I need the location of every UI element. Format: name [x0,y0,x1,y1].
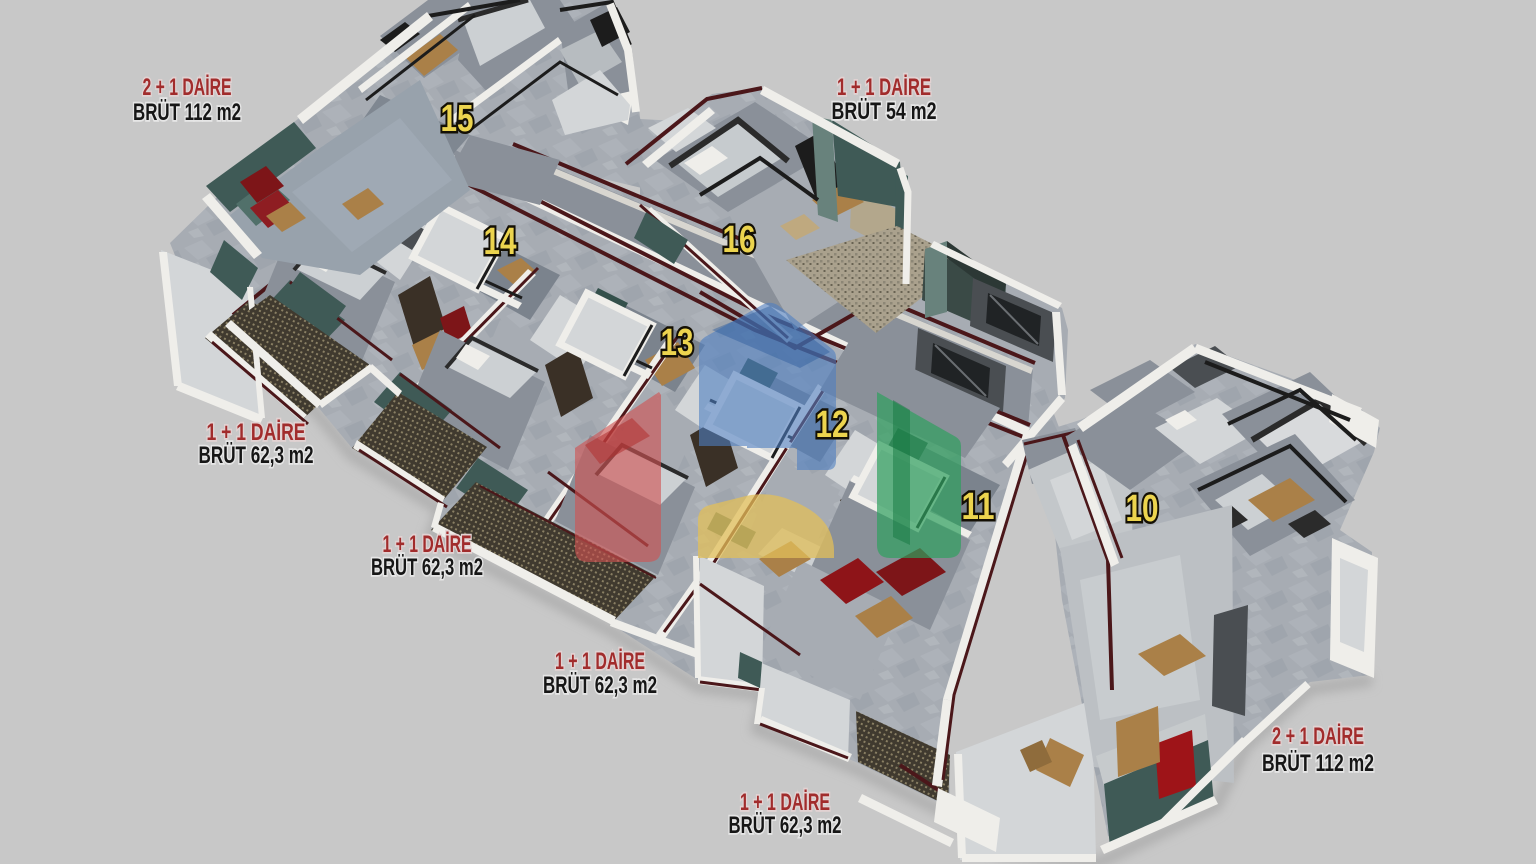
svg-text:16: 16 [723,219,756,261]
svg-text:15: 15 [441,98,474,140]
svg-text:BRÜT 62,3 m2: BRÜT 62,3 m2 [199,442,314,469]
svg-text:BRÜT 112 m2: BRÜT 112 m2 [1262,750,1374,777]
svg-text:14: 14 [484,221,517,263]
svg-text:10: 10 [1126,488,1159,530]
svg-text:BRÜT 112 m2: BRÜT 112 m2 [133,99,241,126]
svg-text:1 + 1 DAİRE: 1 + 1 DAİRE [555,648,645,675]
svg-text:1 + 1 DAİRE: 1 + 1 DAİRE [837,74,931,101]
svg-text:12: 12 [816,404,849,446]
svg-text:BRÜT 54 m2: BRÜT 54 m2 [832,98,937,125]
svg-text:13: 13 [661,322,694,364]
svg-text:BRÜT 62,3 m2: BRÜT 62,3 m2 [543,672,657,699]
svg-text:BRÜT 62,3 m2: BRÜT 62,3 m2 [371,554,483,581]
svg-text:2 + 1 DAİRE: 2 + 1 DAİRE [1272,723,1364,750]
svg-text:2 + 1 DAİRE: 2 + 1 DAİRE [143,74,232,101]
svg-text:11: 11 [962,486,995,528]
svg-text:BRÜT 62,3 m2: BRÜT 62,3 m2 [729,812,842,839]
